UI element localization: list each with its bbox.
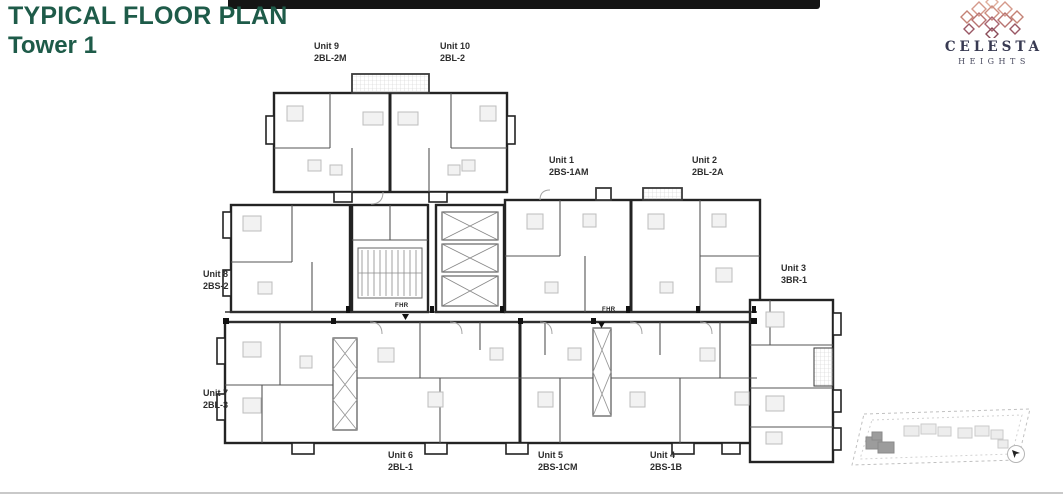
unit-type-code: 2BS-1B [650,462,682,474]
keymap-current-tower [866,432,894,453]
unit-label-4: Unit 4 2BS-1B [650,450,682,473]
unit-number: Unit 3 [781,263,807,275]
elevator-shafts [442,212,498,306]
unit-label-8: Unit 8 2BS-2 [203,269,229,292]
fhr-annotation: FHR [602,307,616,313]
unit-type-code: 2BL-1 [388,462,413,474]
unit-type-code: 2BS-1AM [549,167,589,179]
unit-number: Unit 10 [440,41,470,53]
unit-type-code: 2BL-2M [314,53,347,65]
unit-label-3: Unit 3 3BR-1 [781,263,807,286]
unit-label-10: Unit 10 2BL-2 [440,41,470,64]
unit-number: Unit 5 [538,450,578,462]
unit-label-2: Unit 2 2BL-2A [692,155,724,178]
keymap-north-arrow [1008,446,1025,463]
unit-number: Unit 4 [650,450,682,462]
slide-divider [0,492,1063,494]
unit-label-5: Unit 5 2BS-1CM [538,450,578,473]
unit-number: Unit 1 [549,155,589,167]
unit-label-7: Unit 7 2BL-3 [203,388,228,411]
keymap-other-towers [904,424,1008,448]
slide: TYPICAL FLOOR PLAN Tower 1 CELESTA HEIGH… [0,0,1063,500]
unit-label-9: Unit 9 2BL-2M [314,41,347,64]
unit-type-code: 2BL-2A [692,167,724,179]
unit-number: Unit 8 [203,269,229,281]
unit-type-code: 2BS-2 [203,281,229,293]
unit-number: Unit 7 [203,388,228,400]
unit-type-code: 2BL-2 [440,53,470,65]
unit-number: Unit 9 [314,41,347,53]
unit-type-code: 2BS-1CM [538,462,578,474]
unit-label-1: Unit 1 2BS-1AM [549,155,589,178]
fhr-annotation: FHR [395,303,409,309]
corridor [225,312,757,322]
unit-number: Unit 2 [692,155,724,167]
unit-label-6: Unit 6 2BL-1 [388,450,413,473]
unit-type-code: 2BL-3 [203,400,228,412]
unit-type-code: 3BR-1 [781,275,807,287]
unit-number: Unit 6 [388,450,413,462]
site-key-map [848,404,1043,481]
